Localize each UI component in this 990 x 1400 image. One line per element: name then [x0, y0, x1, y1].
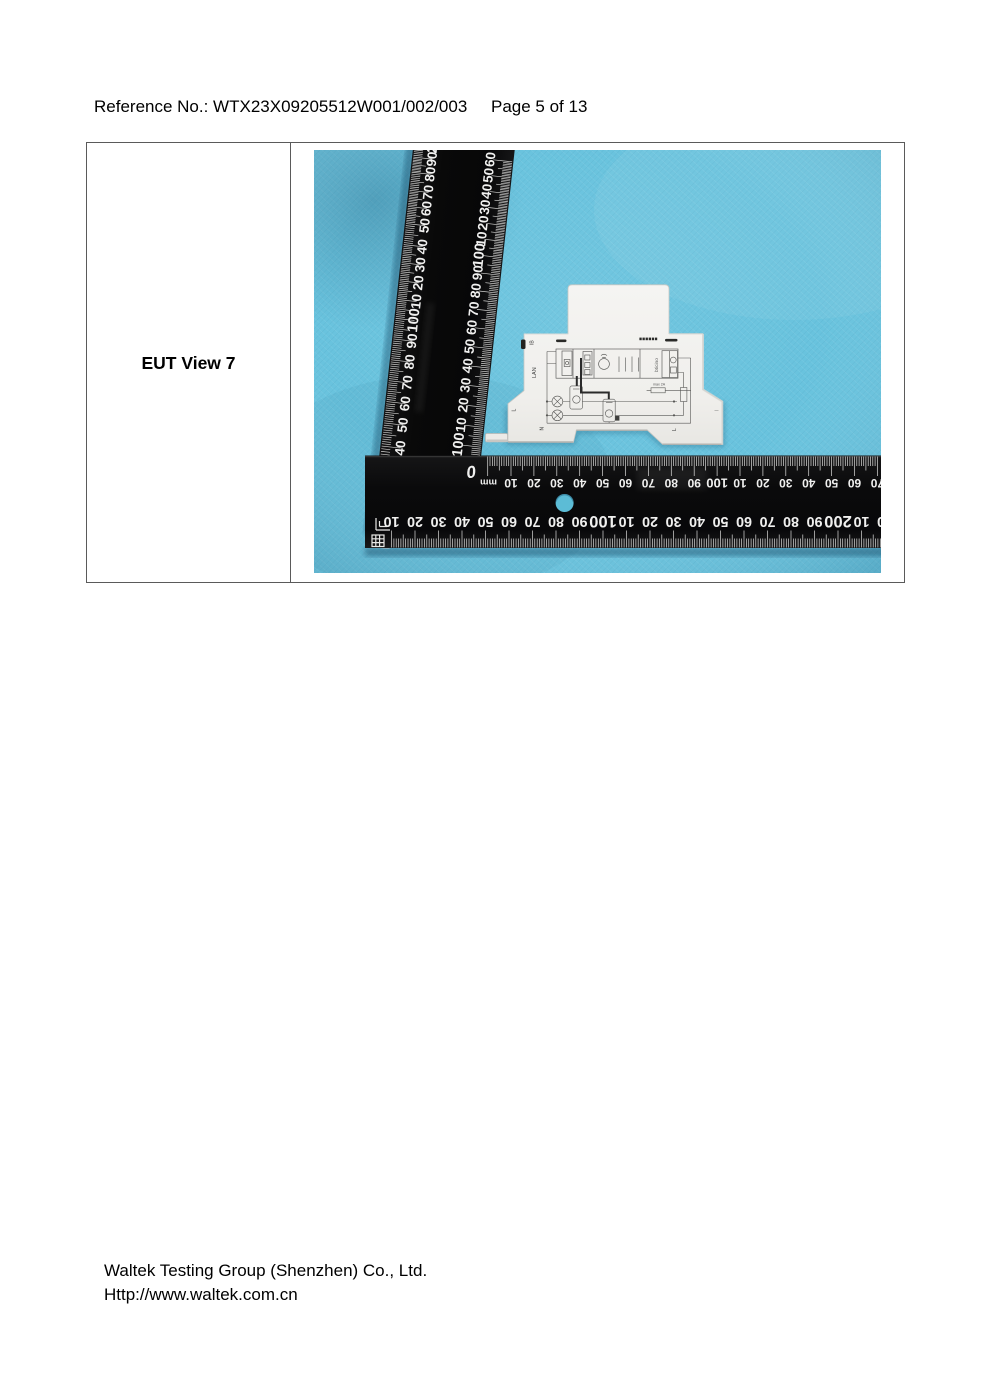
svg-text:40: 40: [689, 513, 705, 529]
svg-text:20: 20: [877, 513, 881, 529]
svg-text:40: 40: [459, 357, 476, 374]
svg-text:50: 50: [713, 513, 729, 529]
svg-text:10: 10: [733, 476, 747, 490]
svg-text:90: 90: [807, 513, 823, 529]
svg-text:mm: mm: [480, 477, 497, 488]
svg-text:90: 90: [687, 476, 701, 490]
svg-text:30: 30: [431, 513, 447, 529]
svg-text:80: 80: [422, 166, 439, 183]
svg-text:10: 10: [504, 476, 518, 490]
svg-text:20: 20: [407, 513, 423, 529]
svg-text:L: L: [512, 409, 518, 412]
svg-text:40: 40: [573, 476, 587, 490]
svg-text:N: N: [540, 427, 546, 431]
svg-text:90: 90: [470, 264, 487, 281]
svg-text:I: I: [715, 410, 721, 411]
svg-text:40: 40: [802, 476, 816, 490]
svg-text:80: 80: [401, 354, 418, 371]
svg-text:20: 20: [756, 476, 770, 490]
svg-text:60: 60: [397, 395, 414, 412]
svg-text:50: 50: [825, 476, 839, 490]
svg-text:10: 10: [619, 513, 635, 529]
svg-text:70: 70: [870, 476, 881, 490]
svg-text:70: 70: [399, 374, 416, 391]
svg-text:30: 30: [550, 476, 564, 490]
svg-text:90: 90: [424, 151, 441, 168]
svg-text:20: 20: [475, 215, 492, 232]
svg-text:70: 70: [641, 476, 655, 490]
svg-text:100: 100: [706, 476, 728, 491]
svg-text:90: 90: [572, 513, 588, 529]
svg-text:20: 20: [410, 275, 427, 292]
svg-text:30: 30: [457, 377, 474, 394]
svg-text:100: 100: [589, 512, 617, 530]
svg-text:L: L: [672, 428, 678, 431]
svg-text:40: 40: [392, 440, 409, 457]
svg-text:70: 70: [420, 184, 437, 201]
svg-text:70: 70: [525, 513, 541, 529]
svg-text:60: 60: [848, 476, 862, 490]
svg-text:100: 100: [450, 432, 469, 458]
svg-text:80: 80: [548, 513, 564, 529]
svg-text:LAN: LAN: [532, 367, 538, 378]
svg-text:80: 80: [783, 513, 799, 529]
svg-text:20: 20: [455, 397, 472, 414]
svg-text:50: 50: [461, 338, 478, 355]
svg-text:50: 50: [394, 417, 411, 434]
svg-text:IB: IB: [530, 340, 536, 345]
svg-text:80: 80: [664, 476, 678, 490]
svg-text:70: 70: [466, 301, 483, 318]
svg-text:50: 50: [596, 476, 610, 490]
svg-text:80: 80: [468, 282, 485, 299]
svg-text:100: 100: [470, 242, 489, 268]
svg-text:50: 50: [416, 217, 433, 234]
svg-text:70: 70: [760, 513, 776, 529]
svg-text:40: 40: [414, 238, 431, 255]
svg-text:10: 10: [453, 417, 470, 434]
svg-text:60: 60: [736, 513, 752, 529]
svg-text:100: 100: [405, 308, 424, 334]
svg-text:20: 20: [642, 513, 658, 529]
svg-text:50: 50: [478, 513, 494, 529]
svg-text:30: 30: [666, 513, 682, 529]
svg-text:max 2A: max 2A: [653, 383, 666, 387]
svg-text:30: 30: [477, 199, 494, 216]
svg-text:60: 60: [619, 476, 633, 490]
svg-text:10: 10: [408, 293, 425, 310]
svg-text:50: 50: [480, 167, 497, 184]
svg-text:30: 30: [412, 256, 429, 273]
svg-text:200: 200: [824, 512, 852, 530]
svg-text:90: 90: [404, 333, 421, 350]
svg-text:30: 30: [779, 476, 793, 490]
svg-text:60: 60: [418, 200, 435, 217]
svg-text:60: 60: [501, 513, 517, 529]
svg-text:10: 10: [854, 513, 870, 529]
svg-text:bticino: bticino: [654, 358, 660, 372]
svg-text:60: 60: [464, 319, 481, 336]
svg-text:40: 40: [454, 513, 470, 529]
svg-text:40: 40: [478, 183, 495, 200]
svg-text:20: 20: [527, 476, 541, 490]
svg-text:60: 60: [482, 151, 499, 168]
